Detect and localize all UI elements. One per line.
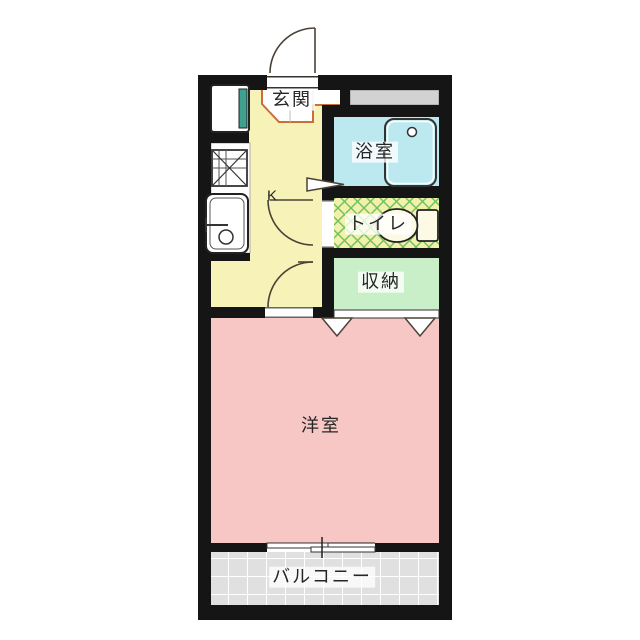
kitchen-label: K bbox=[264, 187, 280, 204]
entrance-door-arc bbox=[270, 28, 315, 73]
appliance-accent bbox=[239, 89, 247, 128]
balcony-label: バルコニー bbox=[269, 567, 375, 588]
toilet-door-jamb-bottom bbox=[322, 247, 334, 249]
wall-window-right bbox=[375, 543, 439, 552]
wall-toilet-bottom bbox=[334, 248, 439, 258]
wall-kitchen-room-right bbox=[313, 307, 334, 318]
window-pane-right bbox=[311, 547, 375, 552]
entrance-sill-line-top bbox=[267, 76, 318, 78]
room-door-jamb-bottom bbox=[265, 317, 313, 319]
bathroom-label: 浴室 bbox=[352, 142, 398, 163]
wall-bottom bbox=[198, 605, 452, 620]
wall-kitchen-room-left bbox=[211, 307, 265, 318]
wall-bathroom-bottom bbox=[334, 186, 439, 198]
wall-window-left bbox=[211, 543, 267, 552]
floor-plan-drawing bbox=[0, 0, 640, 640]
wall-bathroom-top bbox=[322, 105, 439, 117]
toilet-label: トイレ bbox=[345, 214, 411, 235]
toilet-tank bbox=[417, 210, 438, 241]
wall-counter-end bbox=[211, 253, 250, 261]
room-door-opening bbox=[265, 307, 313, 318]
wall-left bbox=[198, 75, 211, 620]
wall-top-right bbox=[318, 75, 452, 90]
floor-plan: 玄関 K 浴室 トイレ 収納 洋室 バルコニー bbox=[0, 0, 640, 640]
wall-right bbox=[439, 75, 452, 620]
entrance-sill-line-bottom bbox=[267, 87, 318, 89]
wall-appliance-separator bbox=[211, 132, 249, 143]
toilet-door-opening bbox=[322, 200, 334, 248]
room-door-jamb-top bbox=[265, 307, 313, 309]
bathtub-drain bbox=[408, 128, 417, 137]
toilet-door-jamb-top bbox=[322, 200, 334, 202]
closet-track bbox=[334, 310, 439, 318]
storage-label: 収納 bbox=[358, 272, 404, 293]
pipe-shaft bbox=[350, 90, 439, 105]
wall-shaft-divider bbox=[340, 90, 350, 107]
genkan-label: 玄関 bbox=[269, 90, 315, 111]
sink-drain bbox=[219, 230, 233, 244]
western-room-label: 洋室 bbox=[298, 416, 344, 437]
